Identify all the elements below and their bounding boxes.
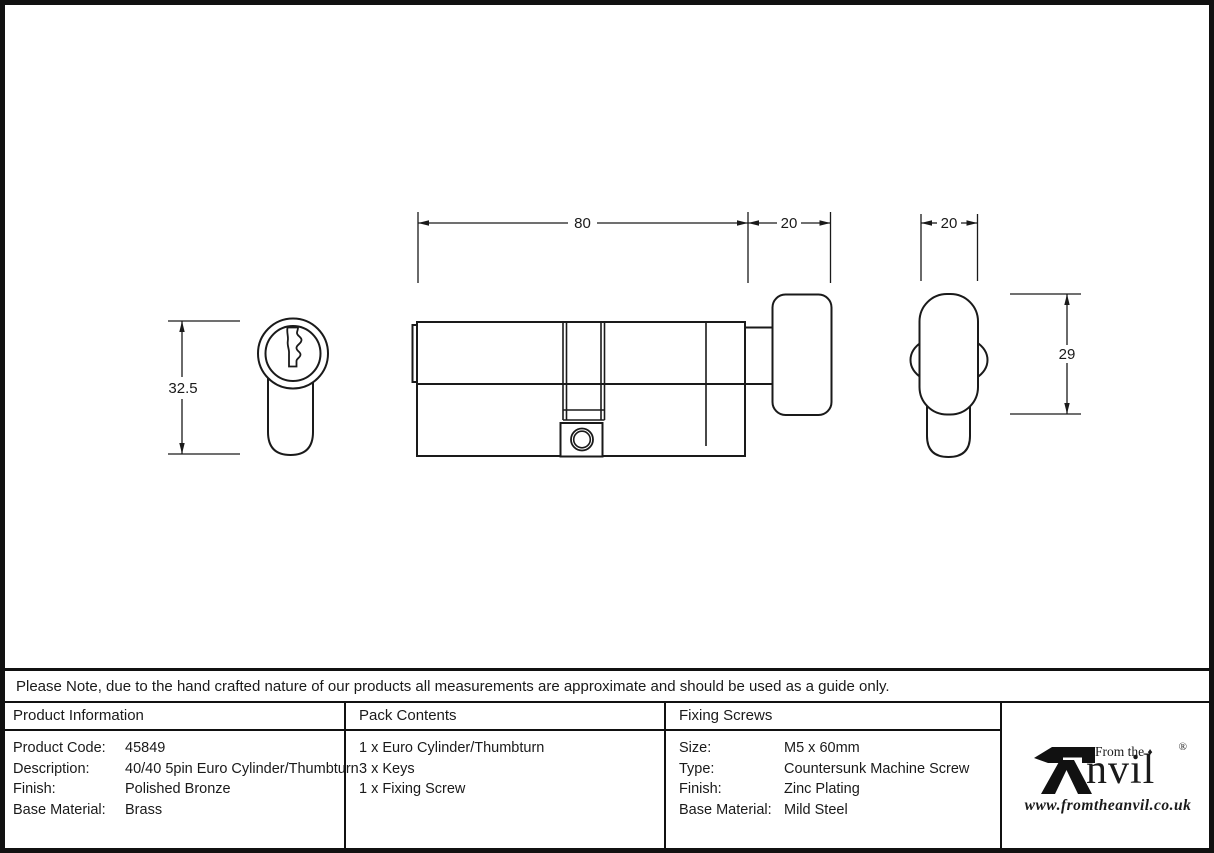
row-label: Type: (679, 759, 784, 780)
dimension-32-5: 32.5 (168, 321, 240, 454)
row-label: Finish: (13, 779, 125, 800)
dim-label-32-5: 32.5 (168, 380, 197, 397)
pack-contents-header: Pack Contents (346, 703, 664, 731)
row-value: M5 x 60mm (784, 738, 860, 759)
list-item: 1 x Fixing Screw (359, 779, 664, 800)
logo-url: www.fromtheanvil.co.uk (1025, 797, 1192, 815)
side-view (413, 295, 832, 457)
table-row: Base Material: Brass (13, 800, 344, 821)
row-label: Base Material: (13, 800, 125, 821)
info-table: Product Information Product Code: 45849 … (0, 703, 1214, 853)
row-label: Size: (679, 738, 784, 759)
row-label: Description: (13, 759, 125, 780)
dim-label-20-end: 20 (941, 215, 958, 232)
end-view (911, 294, 988, 457)
technical-drawing: 80 20 20 32.5 (0, 0, 1214, 668)
table-row: Finish: Polished Bronze (13, 779, 344, 800)
table-row: Base Material: Mild Steel (679, 800, 1000, 821)
note-text: Please Note, due to the hand crafted nat… (16, 678, 890, 695)
brand-column: From the ♦ nvil ® www.fromtheanvil.co.uk (1000, 703, 1214, 853)
row-value: Mild Steel (784, 800, 848, 821)
dim-label-29: 29 (1059, 346, 1076, 363)
row-value: Polished Bronze (125, 779, 231, 800)
product-information-header: Product Information (0, 703, 344, 731)
dimension-20-side: 20 (748, 212, 831, 283)
fixing-screws-column: Fixing Screws Size: M5 x 60mm Type: Coun… (664, 703, 1000, 853)
row-label: Base Material: (679, 800, 784, 821)
logo-name: nvil (1086, 747, 1155, 793)
table-row: Type: Countersunk Machine Screw (679, 759, 1000, 780)
dim-label-80: 80 (574, 215, 591, 232)
dimension-29: 29 (1010, 294, 1081, 414)
thumbturn-side (773, 295, 832, 416)
fixing-screws-header: Fixing Screws (666, 703, 1000, 731)
product-information-column: Product Information Product Code: 45849 … (0, 703, 344, 853)
measurement-note: Please Note, due to the hand crafted nat… (0, 668, 1214, 703)
pack-contents-column: Pack Contents 1 x Euro Cylinder/Thumbtur… (344, 703, 664, 853)
brand-logo: From the ♦ nvil ® www.fromtheanvil.co.uk (1002, 743, 1214, 815)
row-label: Finish: (679, 779, 784, 800)
row-value: Brass (125, 800, 162, 821)
list-item: 1 x Euro Cylinder/Thumbturn (359, 738, 664, 759)
row-value: 40/40 5pin Euro Cylinder/Thumbturn (125, 759, 359, 780)
table-row: Product Code: 45849 (13, 738, 344, 759)
row-value: Zinc Plating (784, 779, 860, 800)
row-value: 45849 (125, 738, 165, 759)
row-label: Product Code: (13, 738, 125, 759)
table-row: Description: 40/40 5pin Euro Cylinder/Th… (13, 759, 344, 780)
registered-mark: ® (1179, 741, 1187, 753)
table-row: Finish: Zinc Plating (679, 779, 1000, 800)
table-row: Size: M5 x 60mm (679, 738, 1000, 759)
fixing-screw-hole-inner (574, 431, 591, 448)
dimension-80: 80 (418, 212, 748, 283)
row-value: Countersunk Machine Screw (784, 759, 969, 780)
list-item: 3 x Keys (359, 759, 664, 780)
front-view (258, 319, 328, 456)
dim-label-20-side: 20 (781, 215, 798, 232)
spec-sheet: 80 20 20 32.5 (0, 0, 1214, 853)
thumbturn-face (920, 294, 979, 415)
dimension-20-end: 20 (921, 214, 978, 281)
